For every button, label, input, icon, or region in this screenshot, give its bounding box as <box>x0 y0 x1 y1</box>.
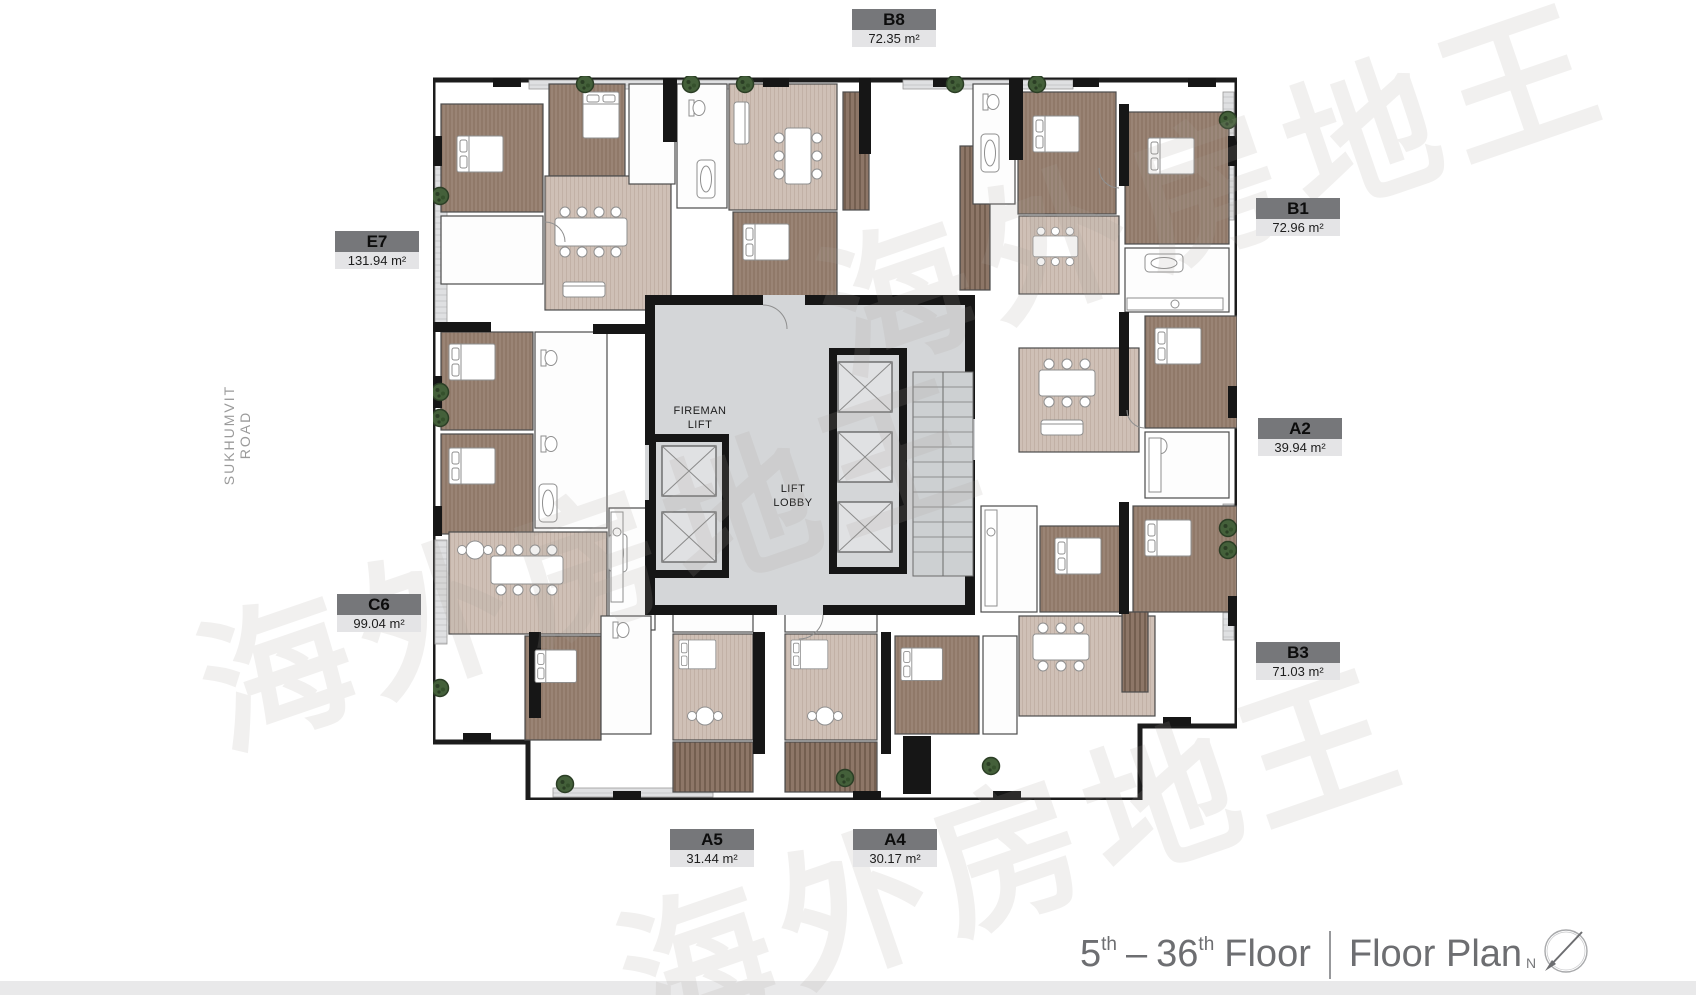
unit-code: E7 <box>335 231 419 252</box>
unit-label-c6: C6 99.04 m² <box>337 594 421 632</box>
plan-word: Floor Plan <box>1349 933 1522 976</box>
unit-label-b8: B8 72.35 m² <box>852 9 936 47</box>
fireman-lift-car <box>662 512 716 562</box>
unit-area: 131.94 m² <box>335 252 419 269</box>
compass-icon: N <box>1516 922 1600 982</box>
unit-area: 39.94 m² <box>1258 439 1342 456</box>
fireman-lift-label-line1: FIREMAN <box>674 405 727 417</box>
floor-to: 36 <box>1156 933 1198 976</box>
stairs <box>913 372 973 576</box>
unit-area: 71.03 m² <box>1256 663 1340 680</box>
floor-dash: – <box>1126 933 1147 976</box>
unit-area: 31.44 m² <box>670 850 754 867</box>
unit-label-a5: A5 31.44 m² <box>670 829 754 867</box>
unit-code: B1 <box>1256 198 1340 219</box>
unit-label-b1: B1 72.96 m² <box>1256 198 1340 236</box>
page: 海外房地王 海外房地王 海外房地王 SUKHUMVIT ROAD <box>0 0 1696 995</box>
unit-area: 99.04 m² <box>337 615 421 632</box>
lift-lobby-label-line1: LIFT <box>781 483 806 495</box>
compass-north-label: N <box>1526 955 1536 971</box>
lift-lobby-label-line2: LOBBY <box>773 497 812 509</box>
floor-word: Floor <box>1224 933 1311 976</box>
floor-from-sup: th <box>1101 934 1117 956</box>
lift-car <box>838 432 892 482</box>
fireman-lift-car <box>662 446 716 496</box>
unit-label-a4: A4 30.17 m² <box>853 829 937 867</box>
unit-area: 30.17 m² <box>853 850 937 867</box>
floor-to-sup: th <box>1198 934 1214 956</box>
unit-label-a2: A2 39.94 m² <box>1258 418 1342 456</box>
road-label: SUKHUMVIT ROAD <box>221 365 253 505</box>
unit-code: A2 <box>1258 418 1342 439</box>
unit-label-e7: E7 131.94 m² <box>335 231 419 269</box>
unit-code: B8 <box>852 9 936 30</box>
lift-car <box>838 502 892 552</box>
unit-code: A5 <box>670 829 754 850</box>
page-title: 5th–36thFloor Floor Plan <box>1080 933 1522 979</box>
lift-core: FIREMAN LIFT LIFT LOBBY <box>645 295 975 615</box>
unit-area: 72.96 m² <box>1256 219 1340 236</box>
lift-car <box>838 362 892 412</box>
title-divider <box>1329 931 1331 979</box>
unit-area: 72.35 m² <box>852 30 936 47</box>
unit-code: C6 <box>337 594 421 615</box>
fireman-lift-label-line2: LIFT <box>688 419 713 431</box>
unit-code: B3 <box>1256 642 1340 663</box>
unit-label-b3: B3 71.03 m² <box>1256 642 1340 680</box>
unit-code: A4 <box>853 829 937 850</box>
floor-plan: FIREMAN LIFT LIFT LOBBY <box>433 76 1237 800</box>
bottom-bar <box>0 981 1696 995</box>
compass: N <box>1516 922 1600 987</box>
floor-plan-drawing: FIREMAN LIFT LIFT LOBBY <box>433 76 1237 800</box>
floor-from: 5 <box>1080 933 1101 976</box>
